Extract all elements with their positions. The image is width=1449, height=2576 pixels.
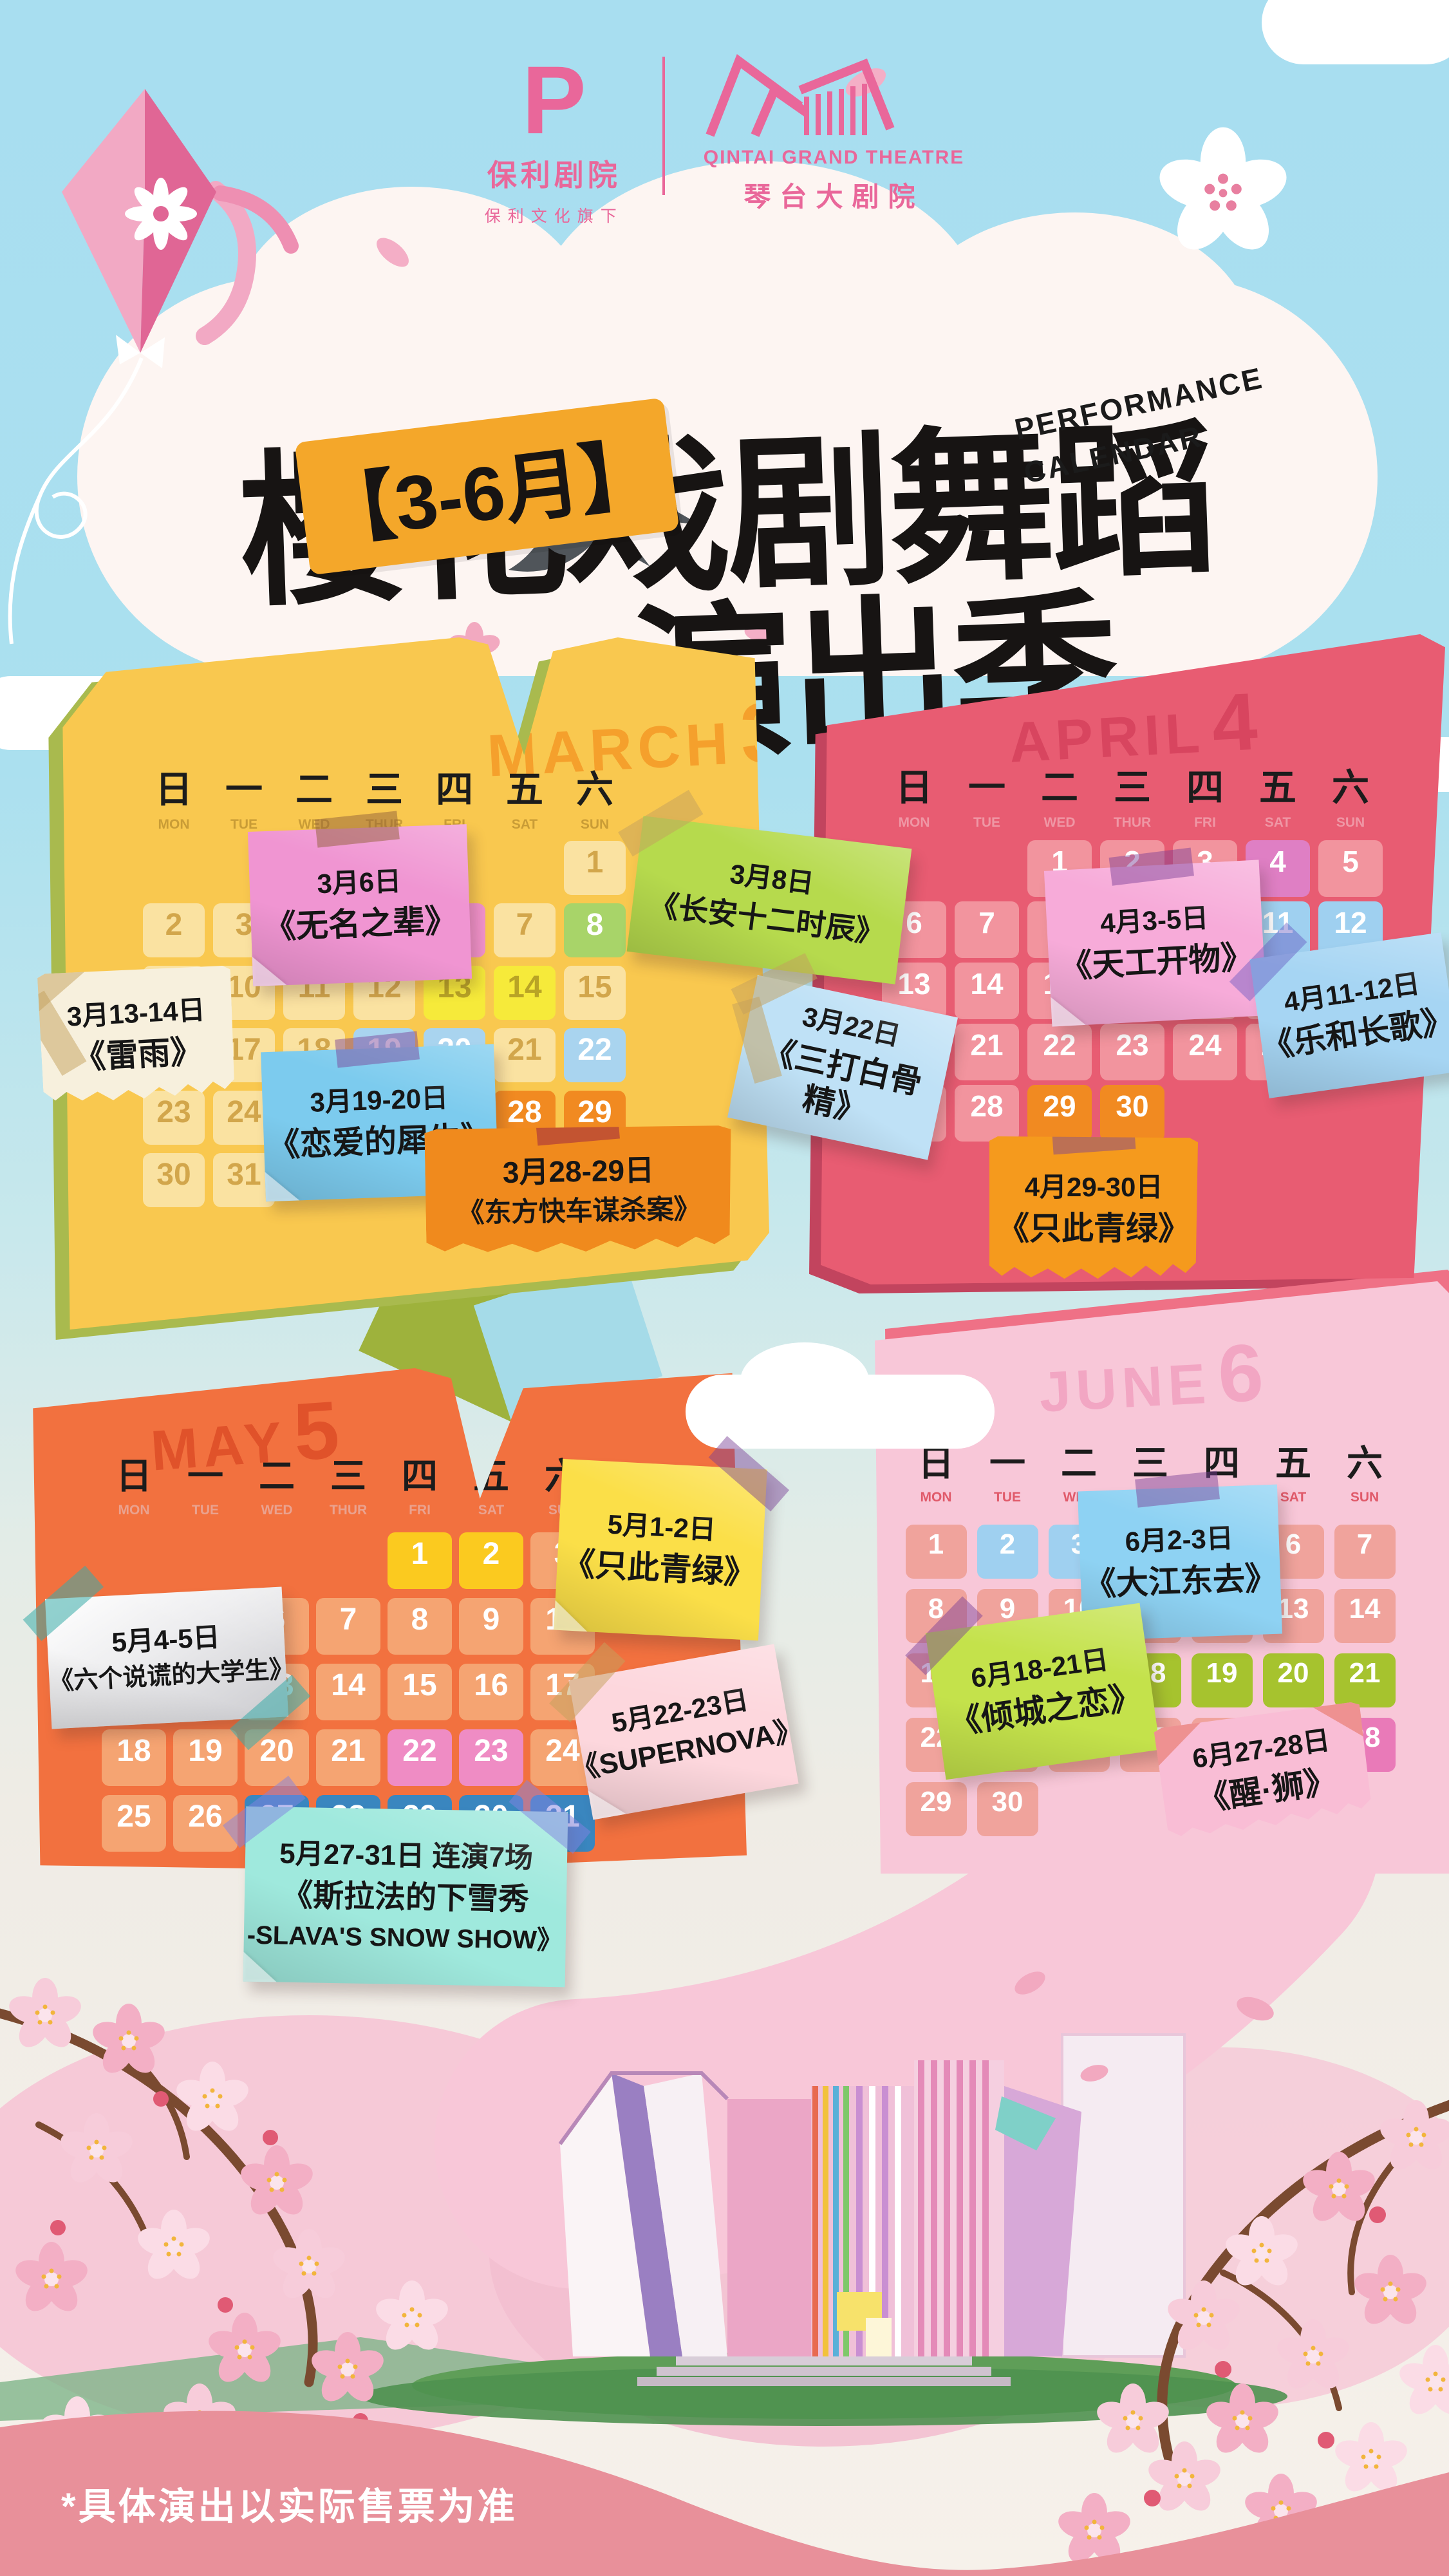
weekday-cn: 二 xyxy=(259,1458,295,1494)
weekday-cn: 一 xyxy=(968,769,1005,807)
note-show-title: 《长安十二时辰》 xyxy=(647,887,886,951)
march-day-22: 22 xyxy=(564,1028,626,1082)
may-weekday-5: 五SAT xyxy=(473,1458,509,1517)
weekday-en: SAT xyxy=(1275,1490,1311,1504)
day-number: 14 xyxy=(331,1668,365,1703)
petal-icon xyxy=(371,232,413,272)
weekday-en: TUE xyxy=(187,1503,223,1517)
day-number: 21 xyxy=(970,1028,1003,1062)
day-number: 13 xyxy=(897,966,930,1001)
logo-divider xyxy=(662,57,665,195)
day-number: 29 xyxy=(921,1786,952,1818)
day-number: 20 xyxy=(1278,1657,1309,1689)
weekday-en: WED xyxy=(1041,816,1078,829)
weekday-cn: 六 xyxy=(1332,769,1369,807)
june-day-1: 1 xyxy=(906,1525,967,1579)
may-day-16: 16 xyxy=(459,1664,523,1720)
april-day-24: 24 xyxy=(1173,1024,1237,1080)
june-day-7: 7 xyxy=(1334,1525,1396,1579)
june-day-14: 14 xyxy=(1334,1589,1396,1643)
day-number: 23 xyxy=(156,1095,191,1130)
day-number: 29 xyxy=(577,1095,612,1130)
theatre-building-illustration xyxy=(560,2035,1184,2386)
weekday-cn: 日 xyxy=(918,1445,954,1481)
april-weekday-6: 六SUN xyxy=(1332,769,1369,829)
day-number: 23 xyxy=(1116,1028,1148,1062)
june-weekday-5: 五SAT xyxy=(1275,1445,1311,1504)
may-day-19: 19 xyxy=(173,1729,238,1786)
march-day-15: 15 xyxy=(564,966,626,1020)
weekday-en: MON xyxy=(895,816,933,829)
weekday-cn: 四 xyxy=(436,771,473,809)
day-number: 21 xyxy=(507,1032,541,1067)
march-weekday-4: 四FRI xyxy=(436,771,473,831)
sticky-note-n15: 6月18-21日《倾城之恋》 xyxy=(926,1603,1161,1780)
day-number: 24 xyxy=(1188,1028,1221,1062)
note-date: 3月6日 xyxy=(317,866,402,900)
weekday-cn: 四 xyxy=(402,1458,438,1494)
weekday-cn: 三 xyxy=(330,1458,367,1494)
day-number: 13 xyxy=(1278,1593,1309,1625)
may-day-7: 7 xyxy=(316,1598,380,1655)
june-day-29: 29 xyxy=(906,1782,967,1836)
march-day-7: 7 xyxy=(494,903,556,957)
weekday-en: SUN xyxy=(1347,1490,1383,1504)
day-number: 8 xyxy=(586,907,604,943)
poly-name-cn: 保利剧院 xyxy=(485,152,624,194)
poly-logo-icon: P xyxy=(485,52,624,148)
june-title-name: JUNE xyxy=(1038,1351,1213,1424)
day-number: 30 xyxy=(156,1157,191,1192)
weekday-en: SUN xyxy=(1332,816,1369,829)
note-date: 6月2-3日 xyxy=(1125,1523,1234,1557)
day-number: 6 xyxy=(1285,1528,1301,1561)
weekday-en: THUR xyxy=(330,1503,367,1517)
weekday-cn: 六 xyxy=(576,771,613,809)
may-weekday-2: 二WED xyxy=(259,1458,295,1517)
march-day-1: 1 xyxy=(564,841,626,895)
april-day-21: 21 xyxy=(955,1024,1019,1080)
may-day-21: 21 xyxy=(316,1729,380,1786)
june-weekday-1: 一TUE xyxy=(989,1445,1025,1504)
note-show-title: 《只此青绿》 xyxy=(562,1544,757,1593)
day-number: 22 xyxy=(1043,1028,1076,1062)
note-show-title: -SLAVA'S SNOW SHOW》 xyxy=(247,1920,563,1957)
april-weekday-4: 四FRI xyxy=(1186,769,1224,829)
may-weekday-4: 四FRI xyxy=(402,1458,438,1517)
day-number: 9 xyxy=(483,1602,500,1637)
note-date: 3月19-20日 xyxy=(310,1082,449,1118)
day-number: 19 xyxy=(1206,1657,1238,1689)
note-date: 3月8日 xyxy=(728,859,816,900)
note-show-title: 《只此青绿》 xyxy=(997,1209,1190,1248)
weekday-cn: 二 xyxy=(1041,769,1078,807)
april-day-22: 22 xyxy=(1027,1024,1092,1080)
weekday-cn: 日 xyxy=(155,771,192,809)
may-day-25: 25 xyxy=(102,1795,166,1852)
weekday-cn: 二 xyxy=(295,771,333,809)
day-number: 6 xyxy=(906,905,922,940)
weekday-cn: 一 xyxy=(187,1458,223,1494)
weekday-en: MON xyxy=(155,818,192,831)
april-day-28: 28 xyxy=(955,1085,1019,1142)
day-number: 26 xyxy=(188,1799,222,1834)
may-weekday-1: 一TUE xyxy=(187,1458,223,1517)
sticky-note-n7: 4月3-5日《天工开物》 xyxy=(1044,860,1267,1026)
sticky-note-n6: 3月28-29日《东方快车谋杀案》 xyxy=(424,1124,733,1258)
april-day-30: 30 xyxy=(1100,1085,1164,1142)
weekday-en: MON xyxy=(116,1503,152,1517)
day-number: 28 xyxy=(507,1095,541,1130)
day-number: 14 xyxy=(507,970,541,1005)
day-number: 5 xyxy=(1342,844,1359,879)
day-number: 30 xyxy=(992,1786,1024,1818)
day-number: 12 xyxy=(1334,905,1367,940)
day-number: 21 xyxy=(331,1733,365,1769)
may-day-9: 9 xyxy=(459,1598,523,1655)
sticky-note-n10: 5月1-2日《只此青绿》 xyxy=(554,1459,767,1641)
weekday-en: FRI xyxy=(402,1503,438,1517)
march-day-30: 30 xyxy=(143,1153,205,1207)
april-day-7: 7 xyxy=(955,901,1019,958)
day-number: 21 xyxy=(1349,1657,1381,1689)
weekday-cn: 五 xyxy=(473,1458,509,1494)
weekday-cn: 五 xyxy=(1259,769,1296,807)
day-number: 18 xyxy=(117,1733,151,1769)
june-weekday-0: 日MON xyxy=(918,1445,954,1504)
weekday-en: SAT xyxy=(1259,816,1296,829)
weekday-en: SAT xyxy=(473,1503,509,1517)
day-number: 15 xyxy=(577,970,612,1005)
note-date: 4月3-5日 xyxy=(1099,903,1209,939)
sticky-note-n3: 3月13-14日《雷雨》 xyxy=(37,964,237,1107)
march-day-23: 23 xyxy=(143,1091,205,1145)
may-day-18: 18 xyxy=(102,1729,166,1786)
qintai-theatre-logo: QINTAI GRAND THEATRE 琴台大剧院 xyxy=(704,52,965,214)
april-weekday-1: 一TUE xyxy=(968,769,1005,829)
april-weekday-3: 三THUR xyxy=(1114,769,1151,829)
brand-header: P 保利剧院 保利文化旗下 QINTAI GRAND THEATRE 琴台大剧院 xyxy=(0,52,1449,227)
june-day-20: 20 xyxy=(1263,1653,1324,1707)
march-day-14: 14 xyxy=(494,966,556,1020)
day-number: 7 xyxy=(516,907,534,943)
april-weekday-2: 二WED xyxy=(1041,769,1078,829)
april-day-14: 14 xyxy=(955,963,1019,1019)
june-title: JUNE6 xyxy=(1036,1325,1266,1430)
day-number: 1 xyxy=(411,1536,429,1572)
day-number: 7 xyxy=(1357,1528,1372,1561)
weekday-cn: 五 xyxy=(1275,1445,1311,1481)
june-title-number: 6 xyxy=(1216,1326,1266,1419)
note-show-title: 《斯拉法的下雪秀 xyxy=(281,1877,529,1918)
weekday-cn: 三 xyxy=(1114,769,1151,807)
weekday-cn: 日 xyxy=(895,769,933,807)
note-date: 5月4-5日 xyxy=(111,1622,220,1659)
day-number: 1 xyxy=(586,845,604,880)
weekday-cn: 六 xyxy=(1347,1445,1383,1481)
qintai-roof-icon xyxy=(704,52,897,142)
weekday-en: WED xyxy=(259,1503,295,1517)
sticky-note-n11: 5月4-5日《六个说谎的大学生》 xyxy=(45,1587,288,1729)
may-day-2: 2 xyxy=(459,1532,523,1589)
day-number: 19 xyxy=(188,1733,222,1769)
day-number: 14 xyxy=(970,966,1003,1001)
note-date: 4月29-30日 xyxy=(1025,1172,1163,1203)
note-date: 5月27-31日 连演7场 xyxy=(279,1838,534,1874)
note-show-title: 《天工开物》 xyxy=(1059,937,1254,986)
note-show-title: 《大江东去》 xyxy=(1083,1559,1278,1604)
note-show-title: 《东方快车谋杀案》 xyxy=(457,1193,701,1230)
note-show-title: 《六个说谎的大学生》 xyxy=(49,1656,287,1698)
day-number: 25 xyxy=(117,1799,151,1834)
june-day-21: 21 xyxy=(1334,1653,1396,1707)
june-weekday-6: 六SUN xyxy=(1347,1445,1383,1504)
day-number: 2 xyxy=(483,1536,500,1572)
cloud-shape xyxy=(740,1342,869,1420)
may-day-15: 15 xyxy=(388,1664,452,1720)
weekday-en: TUE xyxy=(989,1490,1025,1504)
may-weekday-0: 日MON xyxy=(116,1458,152,1517)
footer-disclaimer: *具体演出以实际售票为准 xyxy=(61,2476,518,2530)
day-number: 20 xyxy=(259,1733,294,1769)
weekday-cn: 三 xyxy=(366,771,403,809)
poly-theatre-logo: P 保利剧院 保利文化旗下 xyxy=(485,52,624,227)
day-number: 4 xyxy=(1269,844,1286,879)
april-weekday-0: 日MON xyxy=(895,769,933,829)
march-day-2: 2 xyxy=(143,903,205,957)
day-number: 14 xyxy=(1349,1593,1381,1625)
sticky-note-n9: 4月29-30日《只此青绿》 xyxy=(989,1136,1198,1283)
march-weekday-5: 五SAT xyxy=(506,771,543,831)
weekday-en: TUE xyxy=(225,818,263,831)
day-number: 1 xyxy=(928,1528,944,1561)
day-number: 29 xyxy=(1043,1089,1076,1123)
note-show-title: 《雷雨》 xyxy=(73,1032,203,1077)
june-day-30: 30 xyxy=(977,1782,1038,1836)
note-show-title: 《无名之辈》 xyxy=(263,901,458,946)
day-number: 15 xyxy=(402,1668,436,1703)
day-number: 7 xyxy=(978,905,995,940)
weekday-en: FRI xyxy=(1186,816,1224,829)
may-day-8: 8 xyxy=(388,1598,452,1655)
march-weekday-1: 一TUE xyxy=(225,771,263,831)
note-date: 5月1-2日 xyxy=(607,1509,716,1546)
march-day-8: 8 xyxy=(564,903,626,957)
april-title-name: APRIL xyxy=(1007,700,1206,775)
weekday-en: THUR xyxy=(1114,816,1151,829)
weekday-cn: 五 xyxy=(506,771,543,809)
april-day-5: 5 xyxy=(1318,840,1383,897)
day-number: 30 xyxy=(1116,1089,1148,1123)
april-weekday-5: 五SAT xyxy=(1259,769,1296,829)
june-day-19: 19 xyxy=(1192,1653,1253,1707)
weekday-cn: 一 xyxy=(989,1445,1025,1481)
day-number: 31 xyxy=(227,1157,261,1192)
weekday-cn: 日 xyxy=(116,1458,152,1494)
day-number: 8 xyxy=(411,1602,429,1637)
sticky-note-n13: 5月27-31日 连演7场《斯拉法的下雪秀-SLAVA'S SNOW SHOW》 xyxy=(243,1807,568,1988)
day-number: 22 xyxy=(577,1032,612,1067)
day-number: 2 xyxy=(165,907,183,943)
weekday-cn: 一 xyxy=(225,771,263,809)
qintai-name-cn: 琴台大剧院 xyxy=(704,175,965,214)
weekday-en: MON xyxy=(918,1490,954,1504)
may-day-22: 22 xyxy=(388,1729,452,1786)
note-date: 3月28-29日 xyxy=(502,1153,654,1190)
qintai-name-en: QINTAI GRAND THEATRE xyxy=(704,147,965,169)
day-number: 7 xyxy=(340,1602,357,1637)
weekday-en: SUN xyxy=(576,818,613,831)
april-day-29: 29 xyxy=(1027,1085,1092,1142)
day-number: 23 xyxy=(474,1733,508,1769)
day-number: 2 xyxy=(1000,1528,1015,1561)
sticky-note-n8: 4月11-12日《乐和长歌》 xyxy=(1249,932,1449,1098)
may-day-1: 1 xyxy=(388,1532,452,1589)
weekday-en: TUE xyxy=(968,816,1005,829)
may-day-14: 14 xyxy=(316,1664,380,1720)
may-title: MAY5 xyxy=(147,1382,342,1489)
poly-sub-cn: 保利文化旗下 xyxy=(485,203,624,227)
weekday-cn: 二 xyxy=(1061,1445,1097,1481)
may-day-23: 23 xyxy=(459,1729,523,1786)
day-number: 22 xyxy=(402,1733,436,1769)
march-day-21: 21 xyxy=(494,1028,556,1082)
day-number: 16 xyxy=(474,1668,508,1703)
weekday-cn: 四 xyxy=(1186,769,1224,807)
may-weekday-3: 三THUR xyxy=(330,1458,367,1517)
weekday-en: SAT xyxy=(506,818,543,831)
april-day-23: 23 xyxy=(1100,1024,1164,1080)
april-title-number: 4 xyxy=(1210,675,1259,768)
day-number: 24 xyxy=(227,1095,261,1130)
march-weekday-6: 六SUN xyxy=(576,771,613,831)
note-date: 3月13-14日 xyxy=(66,994,206,1032)
day-number: 28 xyxy=(970,1089,1003,1123)
march-weekday-0: 日MON xyxy=(155,771,192,831)
poster-root: P 保利剧院 保利文化旗下 QINTAI GRAND THEATRE 琴台大剧院 xyxy=(0,0,1449,2576)
sticky-note-n1: 3月6日《无名之辈》 xyxy=(248,824,472,986)
june-day-2: 2 xyxy=(977,1525,1038,1579)
